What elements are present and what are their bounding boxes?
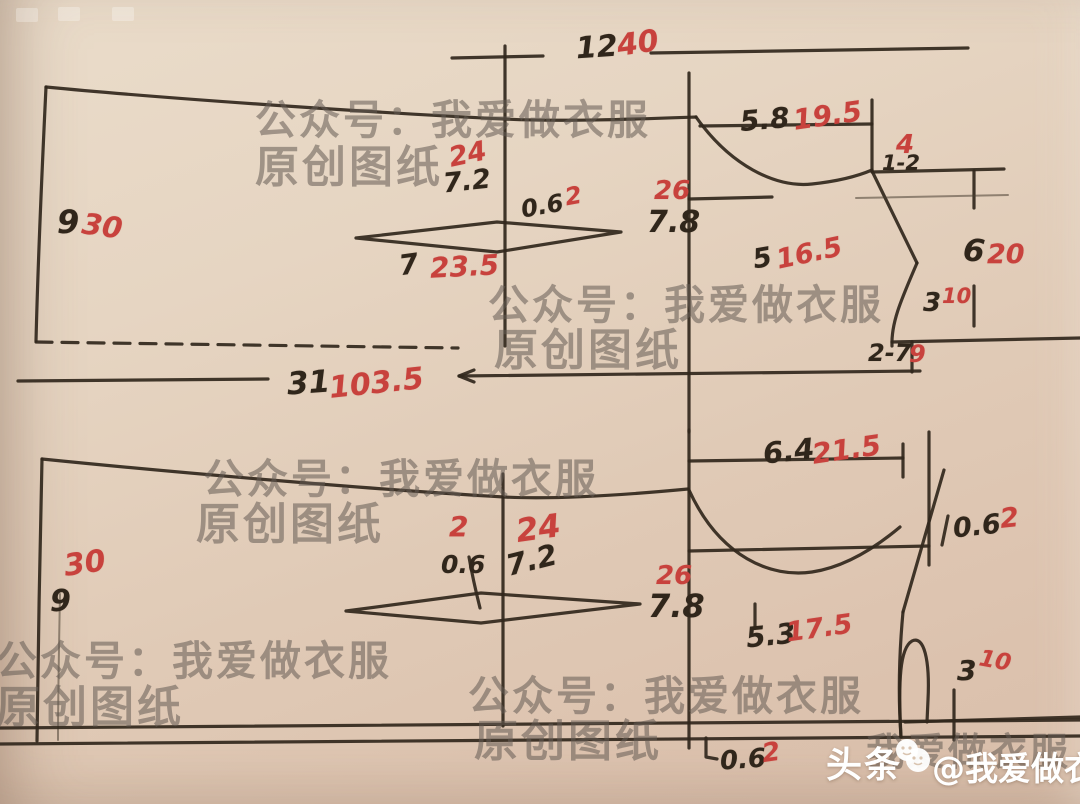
- watermark-account: 公众号：我爱做衣服: [0, 641, 392, 682]
- measure-front-length-black: 9: [50, 587, 71, 617]
- measure-shoulder-width-black: 5.8: [739, 104, 791, 136]
- watermark-origin: 原创图纸: [196, 503, 384, 547]
- measure-armhole-depth-black: 3: [923, 290, 941, 316]
- top-dim-line-left: [452, 56, 543, 58]
- measure-neck-depth-black: 7.8: [647, 208, 700, 238]
- measure-back-length-red: 30: [80, 209, 124, 243]
- measure-back-length-black: 9: [57, 206, 79, 238]
- measure-bottom-armhole-black: 3: [957, 657, 976, 685]
- top-armhole-curve: [892, 263, 917, 346]
- measure-top-width-red: 40: [615, 26, 661, 62]
- measure-bottom-neck-depth-red: 26: [656, 563, 692, 589]
- top-pattern-left-edge: [36, 87, 46, 341]
- bottom-shoulder-seam: [903, 470, 944, 612]
- measure-side-length-red: 20: [987, 241, 1025, 268]
- measure-edge-ease-red: 2: [999, 504, 1021, 533]
- watermark-account: 公众号：我爱做衣服: [255, 100, 651, 141]
- bottom-dart-diamond: [346, 593, 640, 623]
- top-shoulder-seam: [872, 171, 917, 263]
- measure-bottom-dart-ease-red: 2: [449, 513, 468, 541]
- top-dart-diamond: [356, 222, 621, 252]
- watermark-account: 公众号：我爱做衣服: [468, 676, 864, 717]
- bottom-neck-depth-line: [689, 546, 929, 551]
- measure-bottom-armhole-red: 10: [977, 647, 1013, 675]
- toutiao-handle-label: @我爱做衣服: [932, 752, 1080, 785]
- measure-bottom-neck-depth-black: 7.8: [648, 590, 705, 622]
- measure-shoulder-drop-black: 1-2: [882, 153, 920, 174]
- top-right-faint-line: [856, 195, 1008, 198]
- measure-armhole-depth-red: 10: [942, 286, 971, 307]
- measure-side-length-black: 6: [961, 235, 986, 268]
- neck-depth-line: [689, 197, 772, 199]
- toutiao-avatar-icon: [893, 738, 931, 774]
- measure-edge-ease-black: 0.6: [952, 511, 1002, 543]
- measure-dart-ease-red: 2: [563, 183, 584, 210]
- watermark-origin: 原创图纸: [0, 686, 184, 730]
- watermark-account: 公众号：我爱做衣服: [203, 459, 599, 500]
- toutiao-platform-label: 头条: [826, 748, 902, 784]
- measure-total-length-black: 31: [286, 367, 331, 401]
- measure-bottom-dart-ease-black: 0.6: [441, 552, 485, 577]
- watermark-origin: 原创图纸: [494, 329, 682, 373]
- bottom-neck-curve: [689, 490, 900, 573]
- watermark-origin: 原创图纸: [474, 720, 662, 764]
- measure-hem-ease-red: 2: [760, 739, 782, 767]
- measure-center-offset-black: 7.2: [442, 166, 492, 198]
- measure-front-length-red: 30: [62, 546, 108, 582]
- top-dim-line-right: [651, 48, 968, 53]
- measure-dart-length-red: 23.5: [429, 251, 499, 283]
- measure-hem-ease-black: 0.6: [719, 745, 767, 774]
- measure-armhole-width-red: 9: [909, 342, 926, 366]
- measure-neck-depth-red: 26: [654, 178, 690, 204]
- measure-dart-ease-black: 0.6: [519, 190, 565, 221]
- measure-top-width-black: 12: [575, 32, 619, 65]
- measure-bottom-shoulder-width-black: 6.4: [762, 434, 816, 468]
- watermark-account: 公众号：我爱做衣服: [488, 285, 884, 326]
- measure-dart-length-black: 7: [397, 250, 420, 280]
- length-dim-line-left: [18, 379, 268, 381]
- edge-ease-arrow: [942, 516, 948, 545]
- watermark-origin: 原创图纸: [255, 146, 443, 190]
- hem-ease-tick: [706, 738, 717, 759]
- top-pattern-hem-dashed: [36, 342, 458, 348]
- measure-armhole-width-black: 2-7: [868, 341, 911, 365]
- pattern-drafting-photo: 公众号：我爱做衣服 原创图纸 公众号：我爱做衣服 原创图纸 公众号：我爱做衣服 …: [0, 0, 1080, 804]
